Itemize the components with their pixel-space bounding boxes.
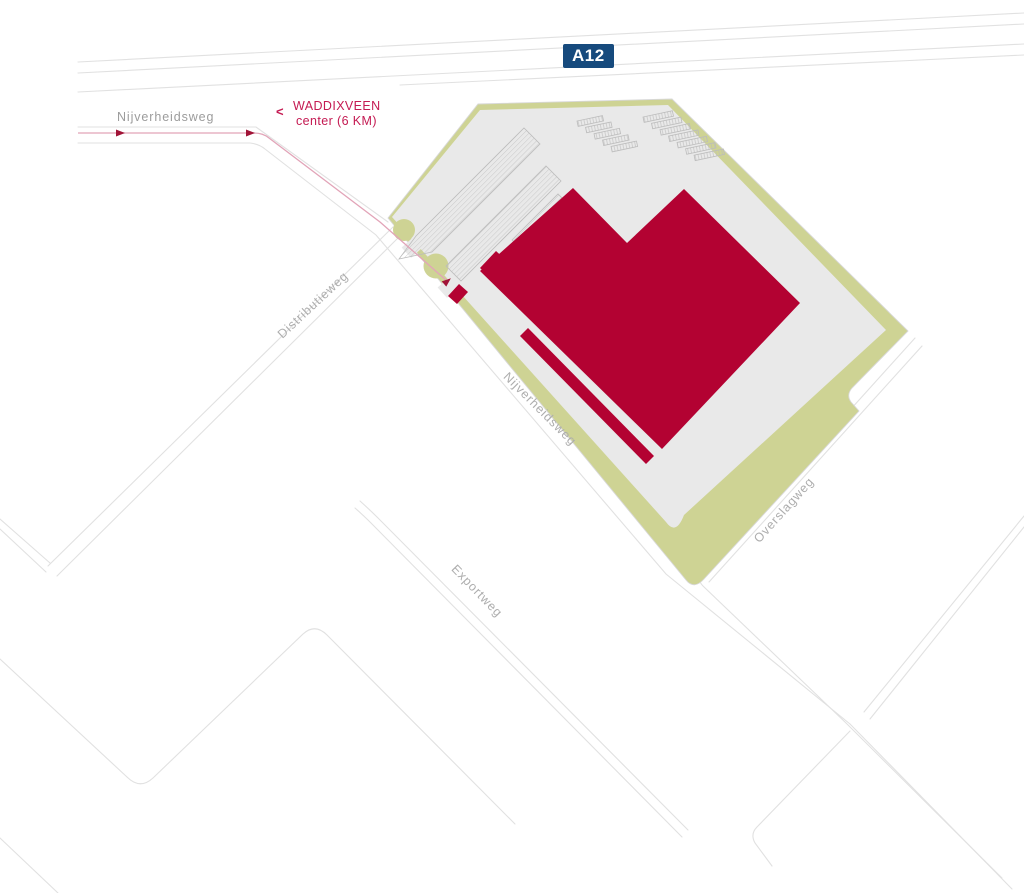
site-location-map: Nijverheidsweg A12 < WADDIXVEEN center (… [0, 0, 1024, 893]
map-canvas [0, 0, 1024, 893]
road-distributieweg [0, 227, 400, 576]
highway-a12-lines [78, 13, 1024, 92]
route-arrow-icon [116, 130, 125, 137]
route-line [78, 133, 447, 281]
highway-badge-a12: A12 [563, 44, 614, 68]
route-arrow-icon [246, 130, 255, 137]
road-exportweg [0, 501, 688, 893]
